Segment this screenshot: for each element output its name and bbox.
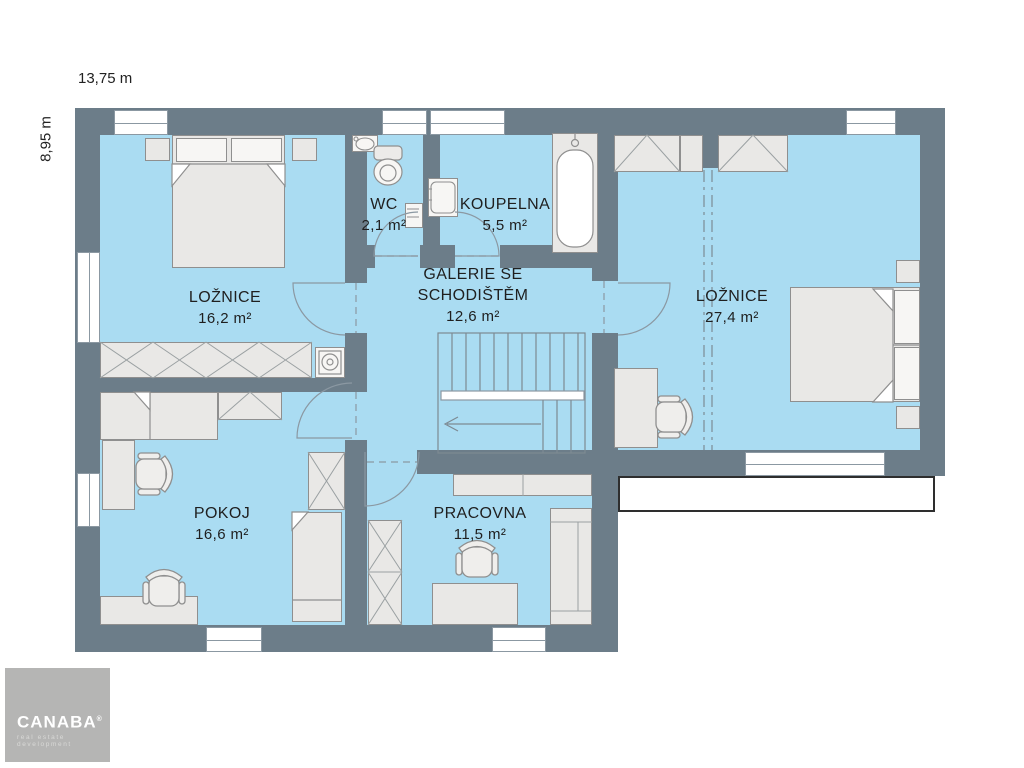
canaba-logo: CANABA® real estate development — [5, 668, 110, 762]
window-bottom-loznice-large — [745, 452, 885, 476]
single-bed-1 — [100, 392, 218, 440]
wall-bedroom-pokoj — [100, 378, 367, 392]
window-left-loznice-small — [77, 252, 100, 343]
room-label-loznice-small: LOŽNICE 16,2 m² — [125, 287, 325, 329]
brand-tagline: real estate development — [17, 734, 110, 748]
brand-name: CANABA — [17, 713, 97, 732]
door-opening-pracovna — [367, 450, 417, 474]
wall-left — [75, 108, 100, 652]
washing-machine — [428, 178, 458, 217]
pillow — [231, 138, 282, 162]
pillow — [894, 290, 920, 344]
wardrobe-loznice-large-3 — [718, 135, 788, 172]
window-top-loznice-large — [846, 110, 896, 135]
wardrobe-loznice-small — [100, 342, 312, 378]
window-top-loznice-small — [114, 110, 168, 135]
nightstand — [896, 260, 920, 283]
wardrobe-loznice-large-1 — [614, 135, 680, 172]
room-label-galerie: GALERIE SE SCHODIŠTĚM 12,6 m² — [373, 264, 573, 327]
window-top-koupelna — [430, 110, 505, 135]
room-label-pracovna: PRACOVNA 11,5 m² — [380, 503, 580, 545]
desk-pokoj-bottom — [100, 596, 198, 625]
sink — [352, 135, 378, 152]
window-bottom-pokoj — [206, 627, 262, 652]
wall-stub-wardrobe — [703, 135, 718, 168]
wall-top — [75, 108, 945, 135]
room-label-loznice-large: LOŽNICE 27,4 m² — [632, 286, 832, 328]
door-opening-loznice-large — [592, 281, 618, 333]
desk-pokoj-left — [102, 440, 135, 510]
dimension-width-label: 13,75 m — [78, 70, 132, 87]
desk-pracovna — [432, 583, 518, 625]
room-label-pokoj: POKOJ 16,6 m² — [122, 503, 322, 545]
room-label-wc: WC 2,1 m² — [345, 194, 423, 236]
desk-loznice-large — [614, 368, 658, 448]
wardrobe-pokoj-top — [218, 392, 282, 420]
cabinet-pracovna — [453, 474, 592, 496]
window-top-wc — [382, 110, 427, 135]
door-opening-loznice-small — [345, 283, 367, 333]
nightstand — [292, 138, 317, 161]
dimension-height-label: 8,95 m — [38, 116, 55, 162]
room-label-koupelna: KOUPELNA 5,5 m² — [455, 194, 555, 236]
chimney-unit — [315, 347, 345, 378]
balcony — [618, 476, 935, 512]
pillow — [176, 138, 227, 162]
registered-mark: ® — [97, 716, 103, 723]
window-bottom-pracovna — [492, 627, 546, 652]
pillow — [894, 347, 920, 400]
bathtub — [552, 133, 598, 253]
wall-right — [920, 108, 945, 476]
nightstand — [896, 406, 920, 429]
window-left-pokoj — [77, 473, 100, 527]
nightstand — [145, 138, 170, 161]
floor-plan: 13,75 m 8,95 m — [0, 0, 1024, 768]
wardrobe-loznice-large-2 — [680, 135, 703, 172]
door-opening-pokoj — [345, 392, 367, 440]
wardrobe-pokoj-right — [308, 452, 345, 510]
